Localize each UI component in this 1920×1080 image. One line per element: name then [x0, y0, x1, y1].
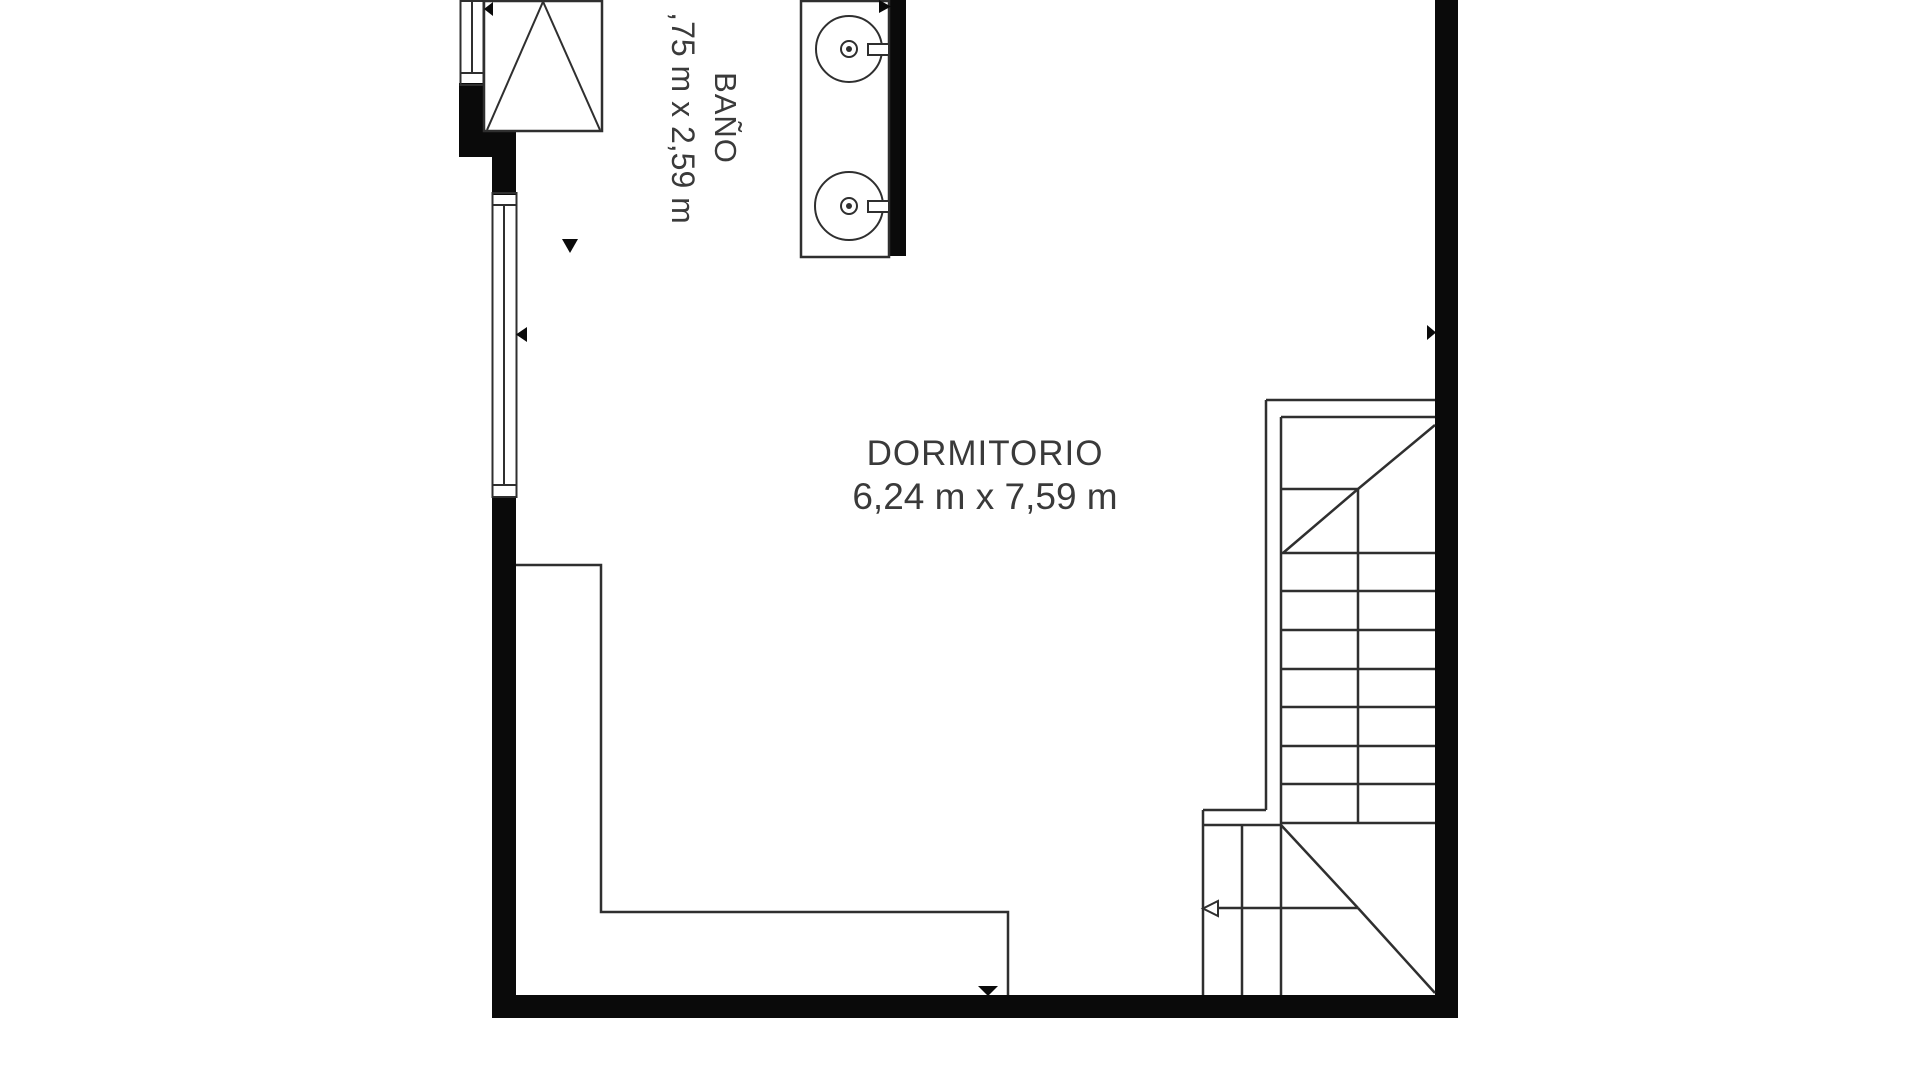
stair-diagonal [1283, 489, 1358, 553]
wall-left-lower [492, 497, 516, 997]
room-dimensions-bedroom: 6,24 m x 7,59 m [789, 475, 1181, 519]
door-top-left [484, 0, 602, 131]
sink-drain-inner [846, 46, 852, 52]
wall-left-step [459, 130, 516, 157]
sink-drain-inner [846, 203, 852, 209]
door-swing-icon [537, 0, 600, 130]
stair-diagonal [1358, 425, 1435, 489]
vanity-counter [801, 1, 889, 257]
stair-diagonal [1358, 908, 1435, 993]
wall-bathroom-divider [889, 0, 906, 256]
faucet-icon [868, 201, 889, 212]
staircase [1203, 400, 1435, 995]
room-name-bathroom: BAÑO [704, 0, 746, 252]
room-dimensions-bathroom: ,75 m x 2,59 m [662, 0, 704, 252]
direction-arrow-icon [978, 986, 998, 996]
floor-plan: BAÑO ,75 m x 2,59 m DORMITORIO 6,24 m x … [0, 0, 1920, 1080]
window-left [492, 193, 517, 497]
room-name-bedroom: DORMITORIO [789, 433, 1181, 475]
direction-arrow-icon [562, 239, 578, 253]
door-swing-icon [487, 0, 549, 130]
direction-arrow-icon [1203, 901, 1218, 916]
faucet-icon [868, 44, 889, 55]
floor-plan-drawing [0, 0, 1920, 1080]
wall-left-upper [492, 155, 516, 195]
wall-right [1435, 0, 1458, 1018]
wall-left-top-column [459, 83, 484, 132]
window-top-left [460, 1, 484, 85]
bedroom-label-block: DORMITORIO 6,24 m x 7,59 m [789, 433, 1181, 519]
wall-bottom [492, 995, 1458, 1018]
bathroom-label-block: BAÑO ,75 m x 2,59 m [662, 0, 746, 252]
bedroom-step-outline [516, 565, 1008, 995]
door-frame [484, 1, 602, 131]
bathroom-vanity [801, 1, 889, 257]
stair-diagonal [1281, 825, 1358, 908]
direction-arrow-icon [516, 327, 527, 342]
direction-arrow-icon [1427, 325, 1436, 340]
direction-arrow-icon [484, 2, 493, 16]
